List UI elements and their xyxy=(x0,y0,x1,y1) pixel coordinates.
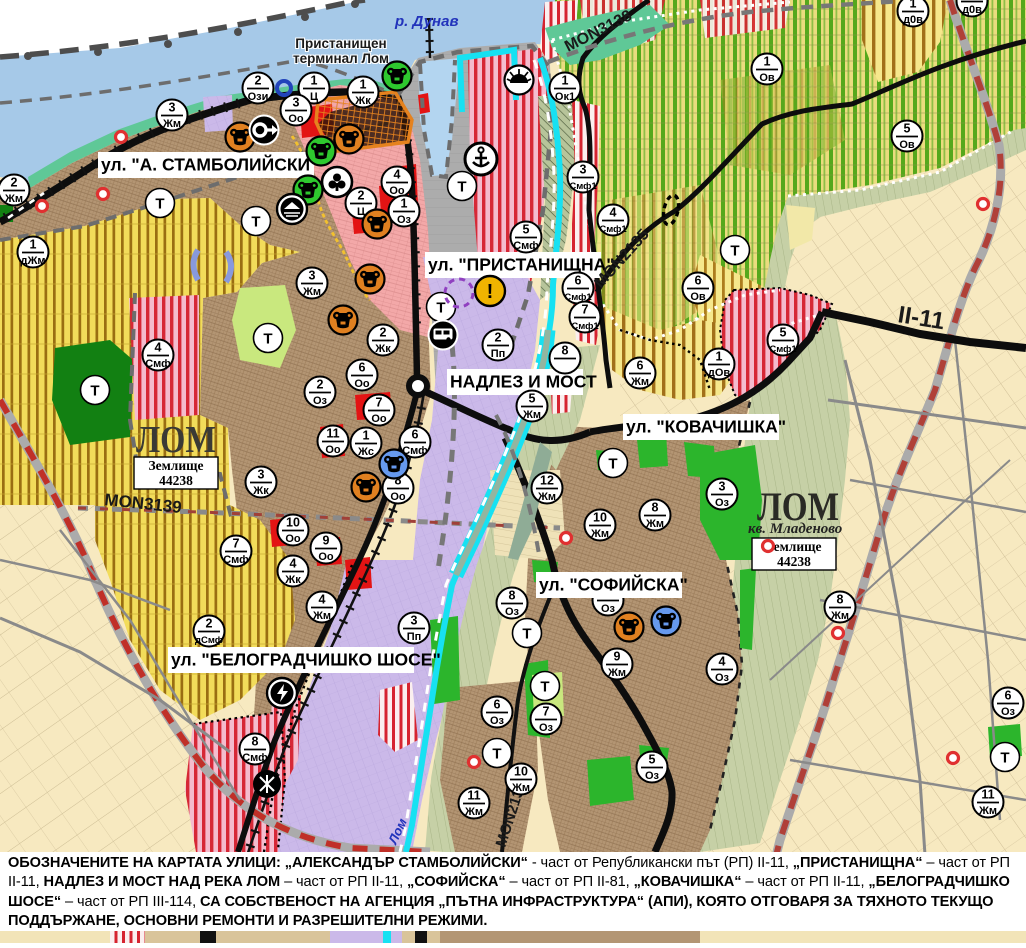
svg-text:10: 10 xyxy=(593,511,607,525)
svg-text:1: 1 xyxy=(716,350,723,364)
svg-text:Смф1: Смф1 xyxy=(571,321,599,332)
svg-text:5: 5 xyxy=(523,223,530,237)
svg-text:терминал Лом: терминал Лом xyxy=(293,51,389,66)
svg-text:6: 6 xyxy=(1005,689,1012,703)
svg-text:10: 10 xyxy=(514,765,528,779)
svg-text:2: 2 xyxy=(358,189,365,203)
svg-text:ул. "СОФИЙСКА": ул. "СОФИЙСКА" xyxy=(539,574,688,595)
svg-text:Оз: Оз xyxy=(645,770,660,782)
svg-text:6: 6 xyxy=(637,359,644,373)
svg-text:д0в: д0в xyxy=(903,14,923,26)
svg-text:д0в: д0в xyxy=(962,4,982,16)
svg-text:Жм: Жм xyxy=(464,806,483,818)
svg-text:Пристанищен: Пристанищен xyxy=(295,36,386,51)
svg-text:Жм: Жм xyxy=(162,118,181,130)
svg-text:8: 8 xyxy=(837,593,844,607)
svg-text:3: 3 xyxy=(169,101,176,115)
svg-text:Оо: Оо xyxy=(318,551,334,563)
svg-text:1: 1 xyxy=(969,0,976,1)
svg-text:Оз: Оз xyxy=(1001,706,1016,718)
svg-text:11: 11 xyxy=(326,427,339,441)
svg-text:Т: Т xyxy=(540,679,549,696)
svg-text:дОв: дОв xyxy=(708,367,731,379)
svg-text:5: 5 xyxy=(904,122,911,136)
svg-text:4: 4 xyxy=(719,655,726,669)
svg-text:Землище: Землище xyxy=(148,458,203,473)
svg-text:Оз: Оз xyxy=(397,214,412,226)
svg-text:3: 3 xyxy=(411,614,418,628)
svg-text:4: 4 xyxy=(319,593,326,607)
svg-text:кв. Младеново: кв. Младеново xyxy=(748,521,842,537)
svg-text:6: 6 xyxy=(575,274,582,288)
svg-text:дСмф: дСмф xyxy=(195,635,223,646)
svg-text:2: 2 xyxy=(255,74,262,88)
svg-text:1: 1 xyxy=(401,197,408,211)
svg-text:9: 9 xyxy=(323,534,330,548)
svg-text:Оз: Оз xyxy=(715,672,730,684)
svg-text:ул. "А. СТАМБОЛИЙСКИ": ул. "А. СТАМБОЛИЙСКИ" xyxy=(101,154,318,175)
svg-text:2: 2 xyxy=(11,176,18,190)
svg-text:Жм: Жм xyxy=(830,610,849,622)
svg-text:Смф: Смф xyxy=(242,752,268,764)
svg-text:8: 8 xyxy=(252,735,259,749)
svg-text:Смф1: Смф1 xyxy=(769,344,797,355)
svg-text:Жм: Жм xyxy=(978,805,997,817)
svg-text:Оо: Оо xyxy=(354,378,370,390)
svg-text:1: 1 xyxy=(910,0,917,11)
svg-text:Ов: Ов xyxy=(690,291,706,303)
svg-text:Т: Т xyxy=(1000,750,1009,767)
svg-text:Т: Т xyxy=(608,456,617,473)
svg-text:8: 8 xyxy=(562,344,569,358)
svg-text:Т: Т xyxy=(436,300,445,317)
svg-text:5: 5 xyxy=(780,326,787,340)
svg-text:1: 1 xyxy=(363,429,370,443)
svg-text:1: 1 xyxy=(311,74,318,88)
svg-text:Жм: Жм xyxy=(511,782,530,794)
svg-text:1: 1 xyxy=(562,74,569,88)
svg-text:ул. "ПРИСТАНИЩНА": ул. "ПРИСТАНИЩНА" xyxy=(428,255,615,275)
svg-text:5: 5 xyxy=(529,392,536,406)
svg-text:Т: Т xyxy=(155,196,164,213)
svg-text:1: 1 xyxy=(764,55,771,69)
svg-text:Жк: Жк xyxy=(374,343,391,355)
svg-text:2: 2 xyxy=(206,617,213,631)
svg-text:4: 4 xyxy=(290,557,297,571)
svg-text:Жм: Жм xyxy=(645,518,664,530)
svg-text:Жм: Жм xyxy=(312,610,331,622)
svg-text:2: 2 xyxy=(317,378,324,392)
svg-text:2: 2 xyxy=(495,331,502,345)
svg-text:Жм: Жм xyxy=(522,409,541,421)
svg-text:10: 10 xyxy=(286,516,300,530)
svg-text:дЖм: дЖм xyxy=(20,255,45,267)
svg-text:Жм: Жм xyxy=(537,491,556,503)
svg-text:7: 7 xyxy=(376,396,383,410)
svg-text:Жк: Жк xyxy=(284,574,301,586)
svg-text:6: 6 xyxy=(695,274,702,288)
svg-text:НАДЛЕЗ И МОСТ: НАДЛЕЗ И МОСТ xyxy=(450,372,597,392)
svg-text:Жк: Жк xyxy=(252,485,269,497)
svg-text:Т: Т xyxy=(457,179,466,196)
svg-text:9: 9 xyxy=(614,650,621,664)
svg-text:Жм: Жм xyxy=(607,667,626,679)
svg-text:Смф: Смф xyxy=(513,240,539,252)
svg-text:8: 8 xyxy=(509,589,516,603)
svg-text:Оз: Оз xyxy=(601,603,616,615)
svg-text:Оз: Оз xyxy=(539,722,554,734)
svg-text:2: 2 xyxy=(380,326,387,340)
svg-text:Оз: Оз xyxy=(505,606,520,618)
svg-text:Пп: Пп xyxy=(491,348,506,360)
svg-text:Ов: Ов xyxy=(899,139,915,151)
svg-text:3: 3 xyxy=(258,468,265,482)
svg-text:11: 11 xyxy=(467,789,480,803)
svg-text:7: 7 xyxy=(543,705,550,719)
svg-text:4: 4 xyxy=(155,341,162,355)
svg-text:6: 6 xyxy=(412,428,419,442)
svg-text:Оз: Оз xyxy=(715,497,730,509)
svg-text:Жм: Жм xyxy=(4,193,23,205)
svg-text:р. Дунав: р. Дунав xyxy=(394,13,459,30)
svg-text:Оо: Оо xyxy=(285,533,301,545)
svg-text:Т: Т xyxy=(263,331,272,348)
svg-text:ул. "БЕЛОГРАДЧИШКО ШОСЕ": ул. "БЕЛОГРАДЧИШКО ШОСЕ" xyxy=(171,650,441,670)
svg-text:Т: Т xyxy=(492,746,501,763)
svg-text:Оз: Оз xyxy=(490,715,505,727)
svg-text:Т: Т xyxy=(522,626,531,643)
svg-text:Жм: Жм xyxy=(302,286,321,298)
svg-text:1: 1 xyxy=(30,238,37,252)
svg-text:Смф: Смф xyxy=(223,554,249,566)
svg-text:Пп: Пп xyxy=(407,631,422,643)
svg-text:3: 3 xyxy=(293,96,300,110)
svg-text:11: 11 xyxy=(981,788,994,802)
svg-text:Смф: Смф xyxy=(145,358,171,370)
svg-text:12: 12 xyxy=(540,474,554,488)
svg-text:44238: 44238 xyxy=(159,473,193,488)
svg-text:Жс: Жс xyxy=(357,446,374,458)
svg-text:Т: Т xyxy=(90,383,99,400)
svg-text:Жм: Жм xyxy=(630,376,649,388)
svg-text:Ов: Ов xyxy=(759,72,775,84)
svg-text:Смф1: Смф1 xyxy=(569,181,597,192)
svg-text:Т: Т xyxy=(251,214,260,231)
svg-text:6: 6 xyxy=(494,698,501,712)
svg-text:Жм: Жм xyxy=(590,528,609,540)
svg-text:Оо: Оо xyxy=(390,491,406,503)
svg-text:8: 8 xyxy=(652,501,659,515)
svg-text:4: 4 xyxy=(610,206,617,220)
svg-text:3: 3 xyxy=(580,163,587,177)
svg-text:7: 7 xyxy=(233,537,240,551)
svg-text:ЛОМ: ЛОМ xyxy=(136,419,216,461)
svg-text:5: 5 xyxy=(649,753,656,767)
svg-text:!: ! xyxy=(487,281,494,303)
svg-text:3: 3 xyxy=(719,480,726,494)
svg-text:44238: 44238 xyxy=(777,554,811,569)
svg-text:6: 6 xyxy=(359,361,366,375)
svg-text:Ц: Ц xyxy=(310,91,318,103)
svg-text:Оз: Оз xyxy=(313,395,328,407)
svg-text:3: 3 xyxy=(309,269,316,283)
svg-text:Оо: Оо xyxy=(325,444,341,456)
svg-text:Жк: Жк xyxy=(354,95,371,107)
svg-text:Ок1: Ок1 xyxy=(555,91,575,103)
svg-text:Оо: Оо xyxy=(288,113,304,125)
svg-text:7: 7 xyxy=(582,303,589,317)
svg-text:Ози: Ози xyxy=(248,91,269,103)
svg-text:ул. "КОВАЧИШКА": ул. "КОВАЧИШКА" xyxy=(626,417,786,437)
svg-text:Смф1: Смф1 xyxy=(599,224,627,235)
svg-text:Оо: Оо xyxy=(371,413,387,425)
svg-text:4: 4 xyxy=(394,168,401,182)
svg-text:Т: Т xyxy=(730,243,739,260)
svg-text:1: 1 xyxy=(360,78,367,92)
